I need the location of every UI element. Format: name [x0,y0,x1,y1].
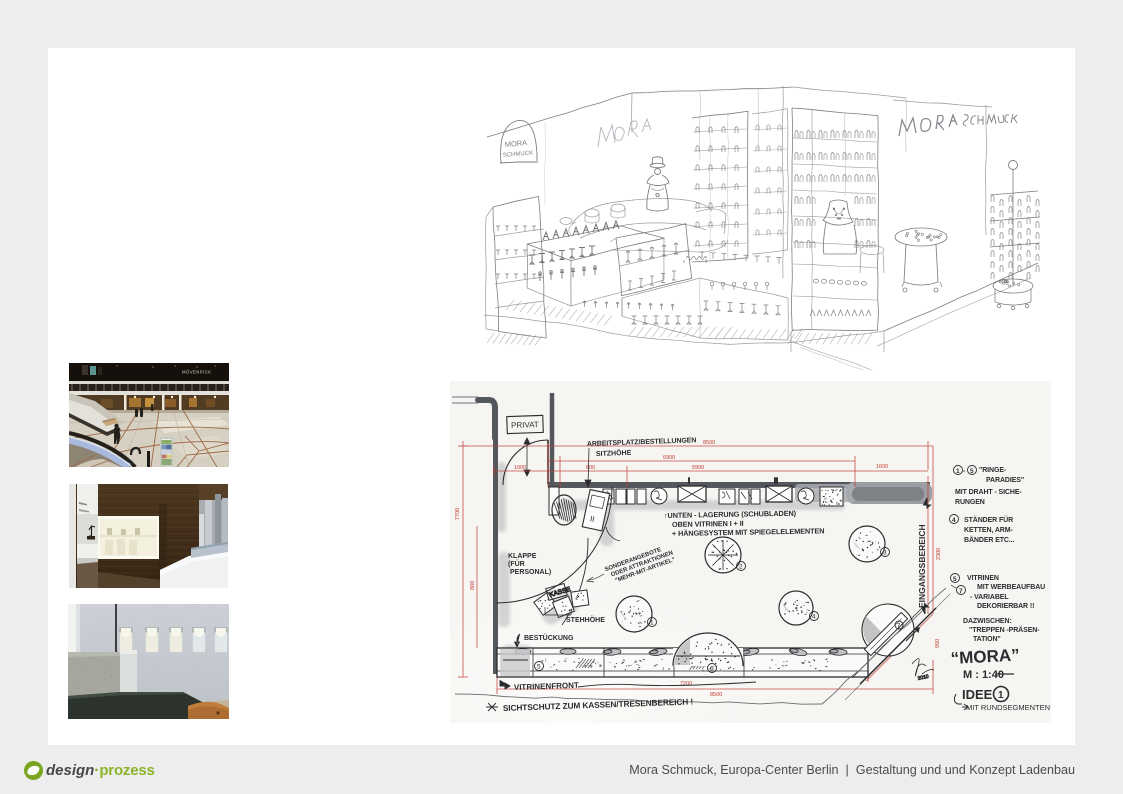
svg-text:800: 800 [586,465,595,471]
svg-text:2300: 2300 [936,548,942,560]
svg-text:6900: 6900 [663,455,675,461]
svg-text:1: 1 [650,620,654,627]
svg-text:5: 5 [537,664,541,671]
svg-text:IDEE: IDEE [962,687,993,702]
svg-text:- VARIABEL: - VARIABEL [970,594,1009,601]
svg-text:DAZWISCHEN:: DAZWISCHEN: [963,618,1012,625]
svg-text:TATION": TATION" [973,636,1001,643]
svg-text:1: 1 [998,690,1004,701]
svg-text:5: 5 [953,576,957,583]
svg-text:(FÜR: (FÜR [508,559,525,568]
svg-text:1600: 1600 [876,464,888,470]
svg-text:8500: 8500 [710,692,722,698]
svg-text:STÄNDER FÜR: STÄNDER FÜR [964,515,1013,524]
svg-text:1000: 1000 [514,465,526,471]
svg-text:SCHMUCK: SCHMUCK [503,150,534,159]
svg-text:EINGANGSBEREICH: EINGANGSBEREICH [917,524,927,608]
svg-text:"TREPPEN -PRÄSEN-: "TREPPEN -PRÄSEN- [969,626,1040,634]
svg-text:MIT WERBEAUFBAU: MIT WERBEAUFBAU [977,584,1045,591]
svg-text:PERSONAL): PERSONAL) [510,569,551,576]
svg-text:1: 1 [956,468,960,475]
svg-text:BÄNDER ETC...: BÄNDER ETC... [964,536,1015,544]
svg-text:5900: 5900 [692,465,704,471]
svg-text:STEHHÖHE: STEHHÖHE [566,615,605,624]
svg-text:6: 6 [710,666,714,673]
svg-text:MIT RUNDSEGMENTEN: MIT RUNDSEGMENTEN [966,703,1050,712]
svg-text:2: 2 [739,564,743,571]
svg-text:MÖVENPICK: MÖVENPICK [182,370,211,375]
svg-text:4: 4 [952,517,956,524]
svg-text:950: 950 [935,639,941,648]
svg-text:PARADIES": PARADIES" [986,477,1024,484]
svg-text:DEKORIERBAR !!: DEKORIERBAR !! [977,603,1034,610]
svg-text:3: 3 [883,550,887,557]
svg-text:RUNGEN: RUNGEN [955,499,985,506]
svg-text:II: II [774,478,778,485]
svg-text:MIT DRAHT - SICHE-: MIT DRAHT - SICHE- [955,489,1022,496]
svg-text:7: 7 [959,588,963,595]
svg-text:KETTEN, ARM-: KETTEN, ARM- [964,527,1013,534]
svg-text:"RINGE-: "RINGE- [979,467,1007,474]
svg-text:“MORA”: “MORA” [950,645,1020,668]
svg-text:BESTÜCKUNG: BESTÜCKUNG [524,633,574,642]
svg-text:5: 5 [970,468,974,475]
svg-text:MORA: MORA [504,138,527,149]
svg-text:7700: 7700 [455,508,461,520]
svg-text:7200: 7200 [680,681,692,687]
svg-text:PRIVAT: PRIVAT [511,420,539,430]
svg-text:800: 800 [470,581,476,590]
svg-text:KLAPPE: KLAPPE [508,553,537,560]
svg-text:VITRINEN: VITRINEN [967,575,999,582]
svg-text:M : 1:40: M : 1:40 [963,669,1004,681]
svg-text:I: I [688,478,690,485]
svg-text:8500: 8500 [703,440,715,446]
svg-text:4: 4 [812,614,816,621]
